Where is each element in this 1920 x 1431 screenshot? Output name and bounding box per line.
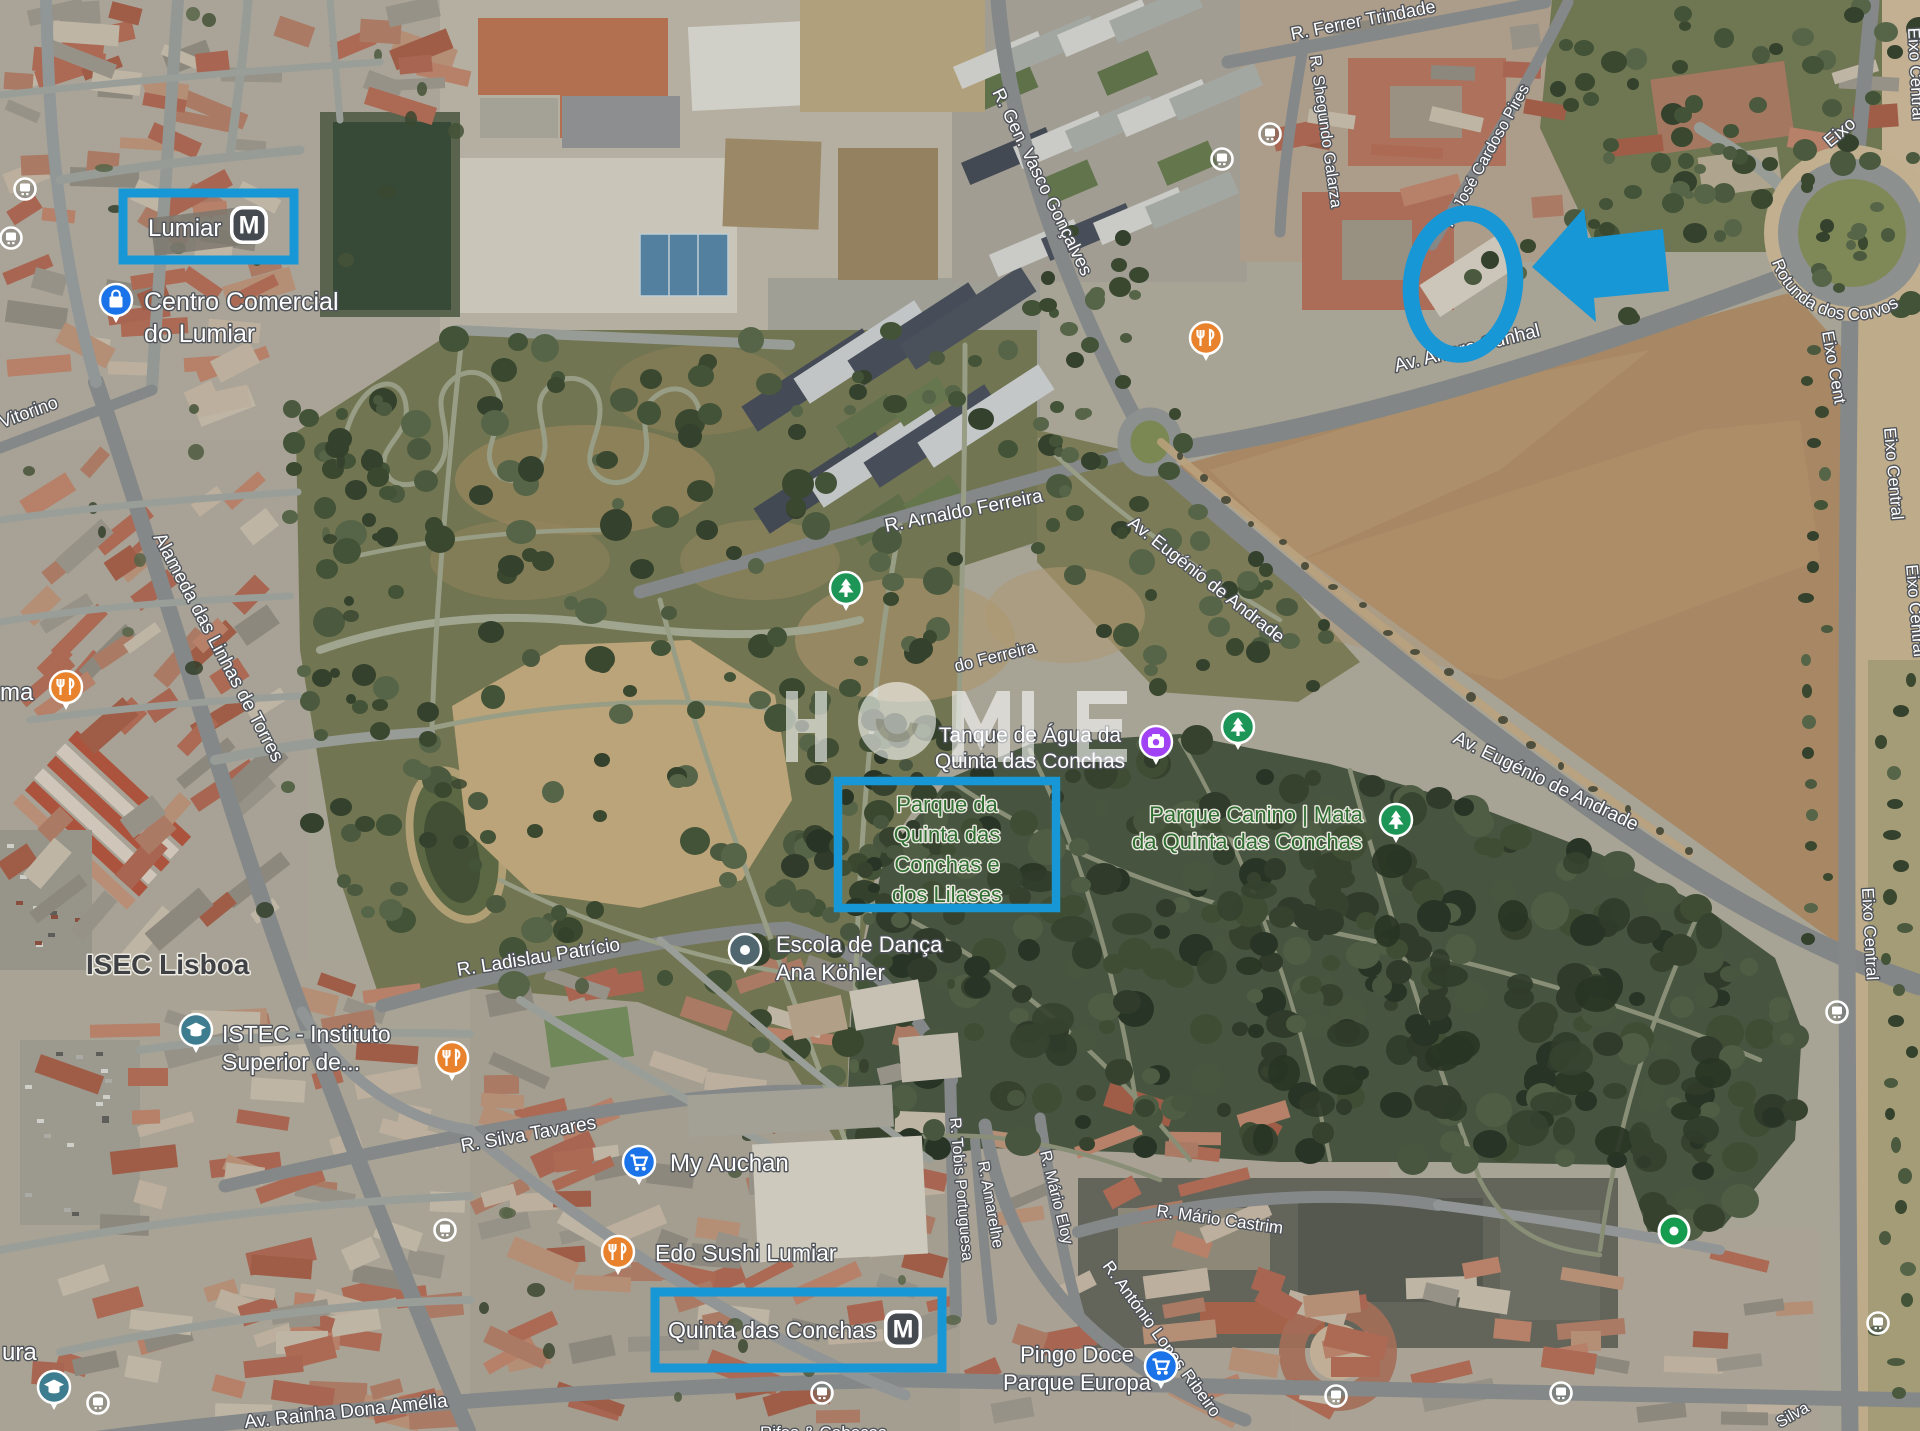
svg-text:ISTEC - Instituto: ISTEC - Instituto [222,1021,391,1047]
svg-text:ISEC Lisboa: ISEC Lisboa [86,949,250,980]
svg-text:Centro Comercial: Centro Comercial [144,288,339,316]
svg-text:ura: ura [2,1339,37,1366]
svg-text:do Lumiar: do Lumiar [144,320,255,348]
svg-text:Parque Europa: Parque Europa [1003,1370,1152,1395]
svg-text:Pingo Doce: Pingo Doce [1020,1342,1134,1367]
svg-text:Quinta das: Quinta das [894,822,1000,847]
svg-text:My Auchan: My Auchan [670,1150,789,1177]
svg-text:Escola de Dança: Escola de Dança [776,932,943,957]
svg-text:Parque Canino | Mata: Parque Canino | Mata [1149,802,1363,827]
svg-text:Lumiar: Lumiar [148,215,221,242]
svg-text:Superior de...: Superior de... [222,1049,360,1075]
svg-text:Ana Köhler: Ana Köhler [776,960,885,985]
svg-text:ma: ma [0,679,34,706]
svg-text:Conchas e: Conchas e [894,852,999,877]
svg-text:Parque da: Parque da [896,792,998,817]
svg-text:Rifas & Cabeças: Rifas & Cabeças [760,1423,887,1431]
svg-text:da Quinta das Conchas: da Quinta das Conchas [1132,829,1362,854]
svg-text:Edo Sushi Lumiar: Edo Sushi Lumiar [655,1240,837,1266]
svg-text:dos Lilases: dos Lilases [892,882,1002,907]
svg-text:Quinta das Conchas: Quinta das Conchas [668,1317,876,1343]
